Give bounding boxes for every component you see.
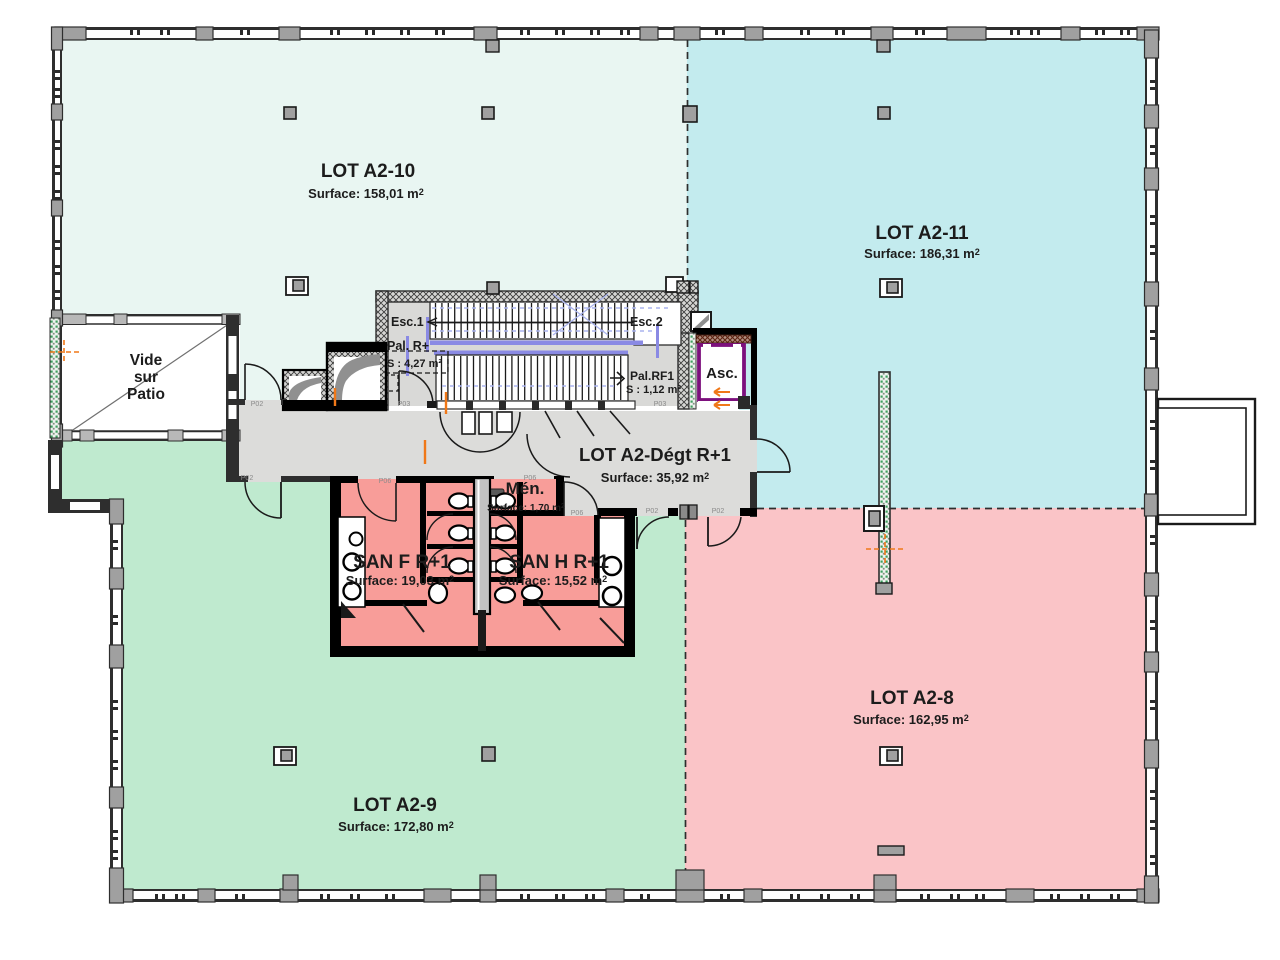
svg-text:sur: sur <box>134 369 158 386</box>
svg-text:P03: P03 <box>654 401 667 408</box>
svg-text:Surface: 35,92 m2: Surface: 35,92 m2 <box>601 470 709 485</box>
svg-text:P02: P02 <box>646 508 659 515</box>
svg-text:P06: P06 <box>571 510 584 517</box>
svg-text:Asc.: Asc. <box>706 365 738 382</box>
svg-text:SAN H R+1: SAN H R+1 <box>509 552 609 573</box>
svg-text:Surface: 1,70 m2: Surface: 1,70 m2 <box>487 503 565 514</box>
svg-text:S : 4,27 m²: S : 4,27 m² <box>387 358 442 370</box>
svg-text:LOT A2-Dégt R+1: LOT A2-Dégt R+1 <box>579 444 731 465</box>
svg-text:Esc.1: Esc.1 <box>391 315 424 329</box>
svg-text:SAN F R+1: SAN F R+1 <box>353 552 451 573</box>
svg-text:P02: P02 <box>241 475 254 482</box>
svg-text:P06: P06 <box>379 478 392 485</box>
svg-text:S : 1,12 m²: S : 1,12 m² <box>626 384 681 396</box>
svg-text:Surface: 186,31 m2: Surface: 186,31 m2 <box>864 246 980 261</box>
svg-text:Patio: Patio <box>127 386 165 403</box>
svg-text:Pal.RF1: Pal.RF1 <box>630 369 674 383</box>
svg-text:Surface: 162,95 m2: Surface: 162,95 m2 <box>853 712 969 727</box>
svg-text:P02: P02 <box>712 508 725 515</box>
svg-text:P03: P03 <box>398 401 411 408</box>
svg-text:LOT A2-8: LOT A2-8 <box>870 688 954 709</box>
svg-text:LOT A2-11: LOT A2-11 <box>875 223 969 244</box>
svg-text:Surface: 19,03 m2: Surface: 19,03 m2 <box>346 573 454 588</box>
svg-text:Surface: 172,80 m2: Surface: 172,80 m2 <box>338 819 454 834</box>
svg-text:Vide: Vide <box>130 352 163 369</box>
svg-text:LOT A2-9: LOT A2-9 <box>353 795 437 816</box>
svg-text:Surface: 158,01 m2: Surface: 158,01 m2 <box>308 186 424 201</box>
svg-text:P02: P02 <box>251 401 264 408</box>
svg-text:P06: P06 <box>524 475 537 482</box>
svg-text:Surface: 15,52 m2: Surface: 15,52 m2 <box>499 573 607 588</box>
svg-text:Pal. R+: Pal. R+ <box>387 339 429 353</box>
svg-text:LOT A2-10: LOT A2-10 <box>321 161 415 182</box>
svg-text:Esc.2: Esc.2 <box>630 315 663 329</box>
